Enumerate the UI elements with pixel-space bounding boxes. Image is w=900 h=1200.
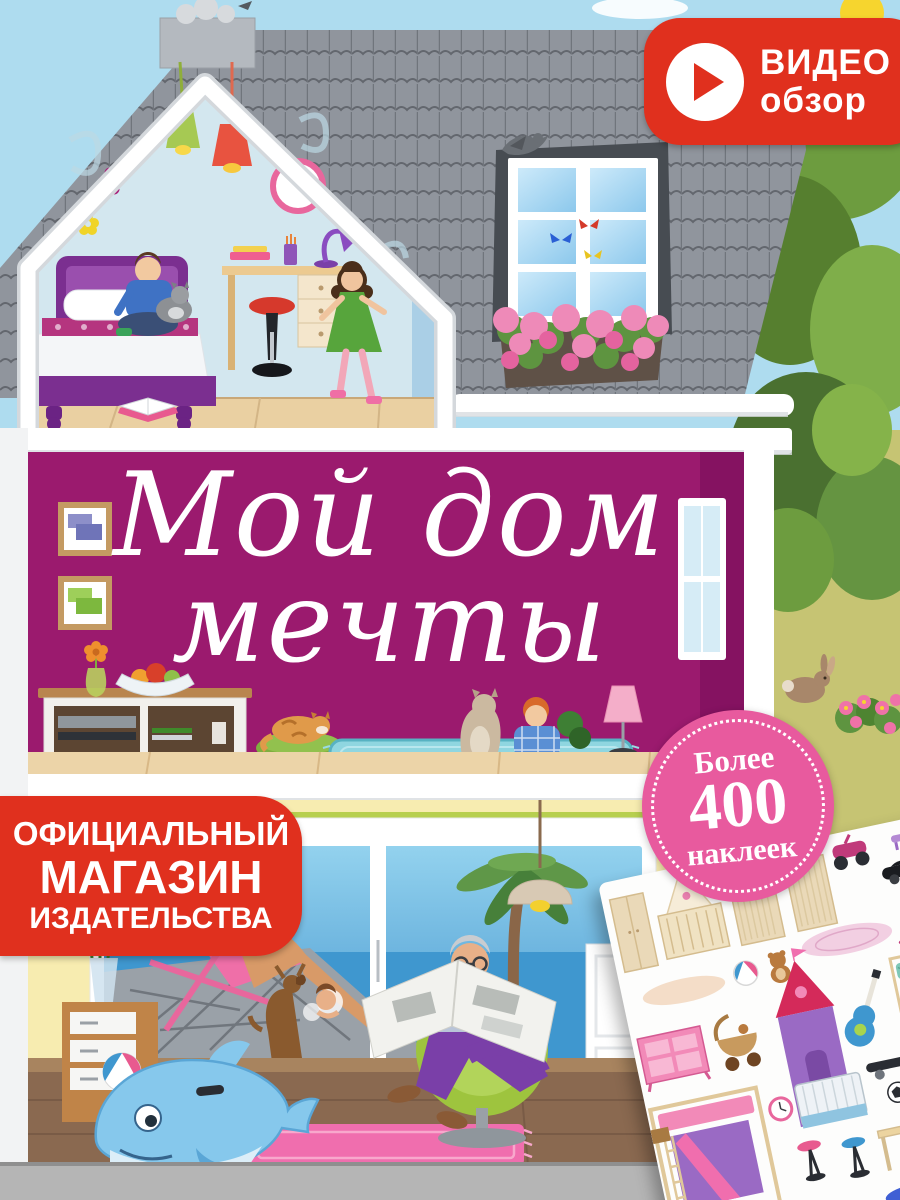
sticker-trampoline [884,1178,900,1200]
sticker-bench [890,829,900,851]
dvd-player [58,716,136,728]
sticker-pink-dresser [637,1026,711,1092]
stickers-count-line3: наклеек [686,832,799,872]
play-icon [666,43,744,121]
video-badge-label: ВИДЕО обзор [760,44,891,120]
dormer-window [492,133,672,388]
sticker-loft-bed-slide [650,1088,781,1200]
sticker-dinosaur [817,1196,866,1200]
sticker-bunk-bed-green [890,945,900,1021]
sticker-skateboard [865,1052,900,1082]
sticker-ball [732,959,760,987]
living-room-floor [28,752,730,776]
sticker-soccer-ball [886,1080,900,1104]
store-badge-line3: ИЗДАТЕЛЬСТВА [29,901,272,937]
sticker-oval-rug [640,970,727,1011]
pencil-cup [284,244,297,265]
sticker-guitar [841,966,892,1050]
sticker-desk-lamp [894,913,900,945]
store-badge-line2: МАГАЗИН [39,853,262,901]
store-badge-line1: ОФИЦИАЛЬНЫЙ [13,815,289,853]
official-store-badge: ОФИЦИАЛЬНЫЙ МАГАЗИН ИЗДАТЕЛЬСТВА [0,796,302,956]
book-cover-product-image: Мой дом мечты ВИДЕО обзор ОФИЦИАЛЬНЫЙ МА… [0,0,900,1200]
sticker-wall-clock [768,1096,794,1122]
side-window [678,498,726,660]
video-review-badge[interactable]: ВИДЕО обзор [644,18,900,145]
sticker-stool-blue [841,1135,873,1180]
picture-frame-bottom [58,576,112,630]
sticker-stool-pink [796,1138,828,1183]
sticker-desk-small [878,1120,900,1171]
sticker-toy-pram [712,1011,763,1073]
stickers-count-line2: 400 [686,770,790,841]
stickers-count-badge: Более 400 наклеек [642,710,834,902]
books-stack [230,252,270,260]
sticker-black-car [880,856,900,887]
picture-frame-top [58,502,112,556]
